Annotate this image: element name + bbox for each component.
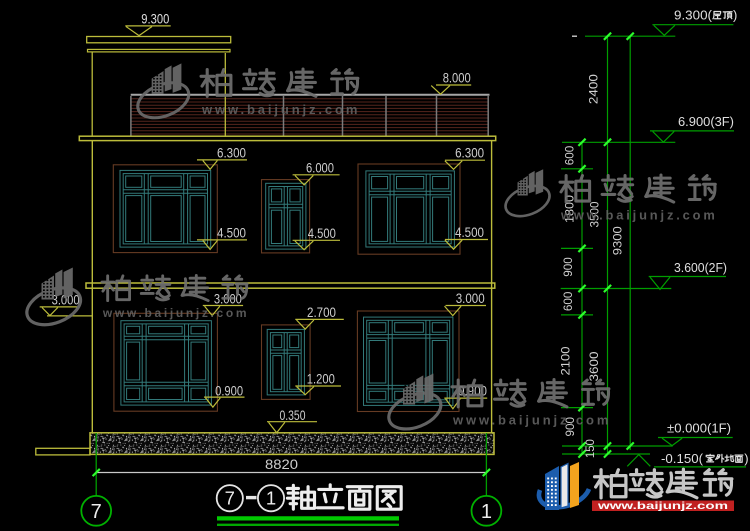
svg-text:1.200: 1.200 (307, 372, 335, 387)
svg-text:±0.000(1F): ±0.000(1F) (667, 421, 731, 436)
svg-text:7: 7 (91, 501, 102, 523)
svg-text:www.baijunjz.com: www.baijunjz.com (597, 501, 728, 512)
svg-text:600: 600 (561, 291, 575, 311)
svg-text:600: 600 (563, 145, 577, 165)
svg-text:8.000: 8.000 (443, 71, 471, 86)
svg-text:9.300: 9.300 (141, 11, 169, 26)
svg-text:6.300: 6.300 (217, 145, 246, 160)
svg-text:-0.150(: -0.150( (661, 451, 704, 466)
svg-text:9.300(: 9.300( (674, 8, 713, 23)
svg-text:0.900: 0.900 (215, 383, 243, 398)
svg-text:2.700: 2.700 (307, 305, 336, 320)
svg-text:3600: 3600 (587, 351, 601, 381)
svg-text:0.350: 0.350 (280, 408, 306, 423)
svg-text:1: 1 (481, 501, 492, 523)
svg-text:900: 900 (561, 257, 575, 277)
svg-text:6.000: 6.000 (306, 160, 334, 175)
svg-text:3.000: 3.000 (456, 291, 485, 306)
svg-text:4.500: 4.500 (308, 226, 336, 241)
svg-text:2400: 2400 (586, 74, 600, 104)
svg-text:6.300: 6.300 (455, 146, 484, 161)
svg-text:4.500: 4.500 (217, 225, 246, 240)
svg-text:1: 1 (266, 488, 276, 509)
svg-text:6.900(3F): 6.900(3F) (678, 114, 734, 129)
svg-text:): ) (733, 8, 737, 23)
svg-text:8820: 8820 (265, 457, 298, 472)
svg-text:150: 150 (583, 439, 597, 458)
svg-text:): ) (744, 451, 748, 466)
svg-text:7: 7 (225, 488, 235, 509)
svg-text:4.500: 4.500 (455, 225, 484, 240)
svg-text:2100: 2100 (559, 346, 573, 375)
svg-text:9300: 9300 (611, 226, 625, 255)
svg-text:3.600(2F): 3.600(2F) (674, 260, 727, 275)
